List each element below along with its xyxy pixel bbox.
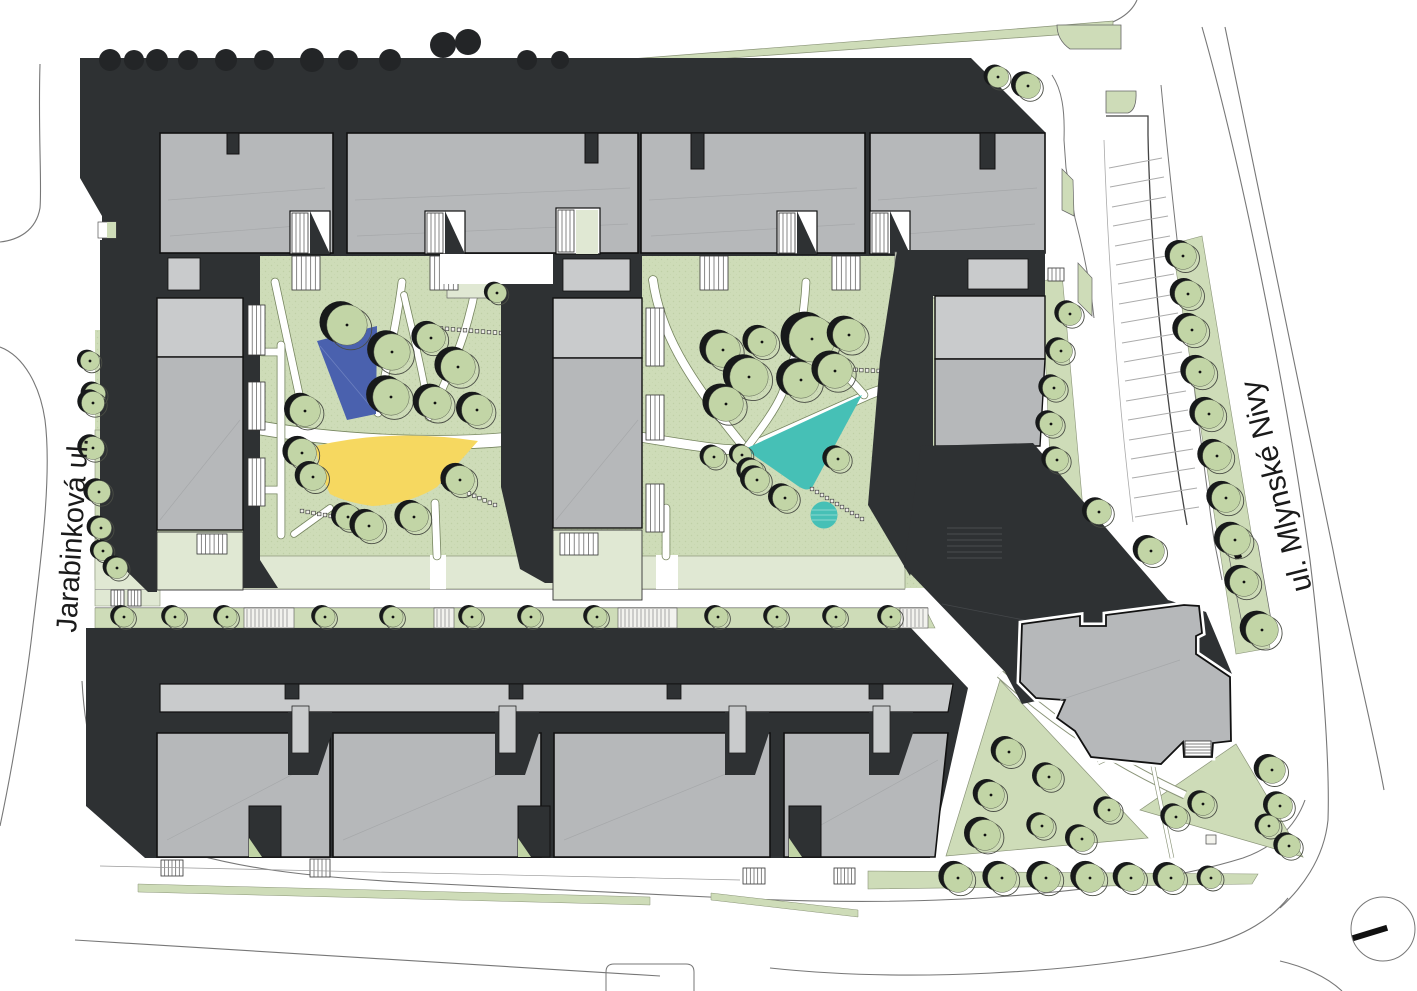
svg-text:Jarabinková ul.: Jarabinková ul.	[51, 437, 95, 634]
